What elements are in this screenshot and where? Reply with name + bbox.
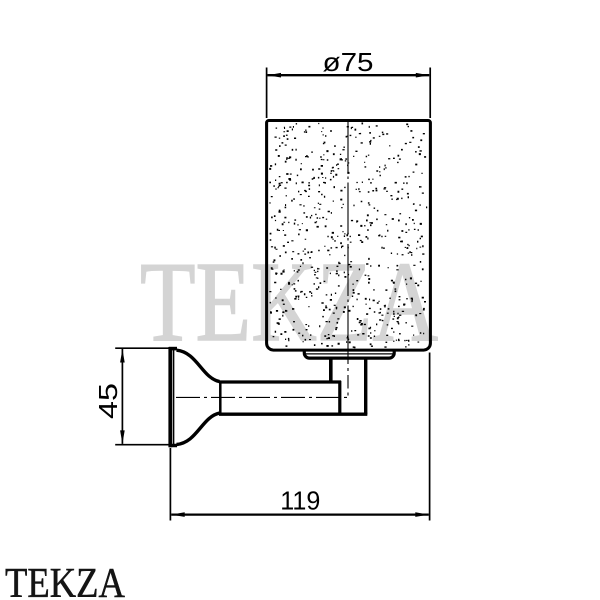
svg-text:45: 45 xyxy=(93,383,123,419)
svg-text:119: 119 xyxy=(280,486,320,516)
svg-text:ø75: ø75 xyxy=(323,47,374,77)
svg-text:TEKZA: TEKZA xyxy=(5,560,125,600)
svg-text:TEKZA: TEKZA xyxy=(140,238,438,365)
